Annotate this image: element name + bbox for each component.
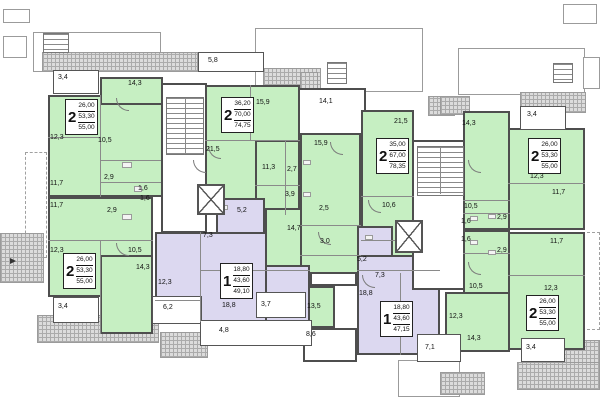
roof-box xyxy=(3,36,27,58)
toilet-icon xyxy=(470,216,478,221)
area-full: 47,15 xyxy=(393,325,409,335)
bath-icon xyxy=(365,235,373,240)
area-total: 53,30 xyxy=(539,308,555,319)
roof-hatch xyxy=(42,52,198,72)
room-area-label: 3,0 xyxy=(320,238,330,246)
room-area-label: 3,4 xyxy=(527,111,537,119)
room-area-label: 12,3 xyxy=(158,279,172,287)
area-total: 53,30 xyxy=(78,112,94,123)
room-area-label: 10,5 xyxy=(128,247,142,255)
toilet-icon xyxy=(303,160,311,165)
stair-stringer xyxy=(440,148,441,194)
room-area-label: 3,4 xyxy=(526,344,536,352)
roof-box xyxy=(583,57,600,89)
apartment-info-box: 1 18,80 43,60 47,15 xyxy=(380,301,413,337)
room-area-label: 10,5 xyxy=(469,283,483,291)
room-area-label: 15,9 xyxy=(314,140,328,148)
wall xyxy=(463,200,510,201)
room-area-label: 11,7 xyxy=(550,238,563,246)
room-area-label: 3,7 xyxy=(261,301,271,309)
room-area-label: 7,1 xyxy=(425,344,435,352)
room-area-label: 14,7 xyxy=(287,225,301,233)
wall xyxy=(200,270,310,271)
apartment-rooms-count: 2 xyxy=(379,149,387,164)
room-area-label: 14,3 xyxy=(136,264,150,272)
area-total: 67,00 xyxy=(389,151,405,162)
entrance-stairs xyxy=(553,63,573,83)
wall xyxy=(100,160,161,161)
wall xyxy=(200,232,201,322)
apartment-info-box: 2 36,20 70,00 74,75 xyxy=(221,97,254,133)
apartment-info-box: 2 26,00 53,30 55,00 xyxy=(526,295,559,331)
area-total: 43,60 xyxy=(233,276,249,287)
wall xyxy=(100,182,161,183)
apartment-info-box: 2 26,00 53,30 55,00 xyxy=(528,138,561,174)
room-area-label: 2,5 xyxy=(319,205,329,213)
apartment-info-box: 2 26,00 53,30 55,00 xyxy=(65,99,98,135)
entrance-canopy-hatch xyxy=(0,233,44,283)
room-area-label: 14,3 xyxy=(462,120,476,128)
room-area-label: 12,3 xyxy=(449,313,463,321)
apartment-rooms-count: 2 xyxy=(66,264,74,279)
apartment-D-rooms xyxy=(300,133,361,274)
room-area-label: 11,7 xyxy=(552,189,565,197)
room-area-label: 21,5 xyxy=(206,146,220,154)
area-total: 53,30 xyxy=(541,151,557,162)
entrance-stairs xyxy=(43,33,69,53)
wall xyxy=(255,185,300,186)
room-area-label: 12,3 xyxy=(50,134,64,142)
area-living: 18,80 xyxy=(233,265,249,276)
room-area-label: 3,4 xyxy=(58,303,68,311)
area-living: 26,00 xyxy=(541,140,557,151)
area-full: 78,35 xyxy=(389,162,405,172)
corridor-middle xyxy=(298,88,366,138)
wall xyxy=(100,240,101,334)
room-area-label: 12,3 xyxy=(544,285,558,293)
toilet-icon xyxy=(470,240,478,245)
room-area-label: 3,9 xyxy=(285,191,295,199)
area-full: 55,00 xyxy=(539,319,555,329)
sink-icon xyxy=(488,214,496,219)
entrance-arrow-icon xyxy=(10,258,16,264)
room-area-label: 18,8 xyxy=(359,290,373,298)
balcony xyxy=(417,334,461,362)
room-area-label: 1,6 xyxy=(140,195,150,203)
sink-icon xyxy=(303,192,311,197)
area-total: 43,60 xyxy=(393,314,409,325)
area-full: 55,00 xyxy=(541,162,557,172)
room-area-label: 2,9 xyxy=(497,214,507,222)
room-area-label: 14,3 xyxy=(467,335,481,343)
apartment-rooms-count: 2 xyxy=(68,110,76,125)
wall xyxy=(508,275,585,276)
apartment-rooms-count: 2 xyxy=(224,108,232,123)
area-living: 35,00 xyxy=(389,140,405,151)
room-area-label: 1,6 xyxy=(461,218,471,226)
room-area-label: 18,8 xyxy=(222,302,236,310)
room-area-label: 11,7 xyxy=(50,180,63,188)
room-area-label: 15,9 xyxy=(256,99,270,107)
entrance-stairs xyxy=(327,62,347,84)
area-total: 70,00 xyxy=(234,110,250,121)
elevator-icon xyxy=(395,220,423,253)
area-full: 74,75 xyxy=(234,121,250,131)
area-living: 26,00 xyxy=(78,101,94,112)
area-total: 53,30 xyxy=(76,266,92,277)
room-area-label: 12,3 xyxy=(50,247,64,255)
roof-hatch xyxy=(440,372,485,395)
wall xyxy=(361,196,414,197)
room-area-label: 1,6 xyxy=(138,185,148,193)
room-area-label: 2,9 xyxy=(497,247,507,255)
room-area-label: 5,2 xyxy=(237,207,247,215)
roof-box xyxy=(563,4,597,24)
floor-plan: 3,4 14,3 12,3 10,5 11,7 2,9 1,6 11,7 1,6… xyxy=(0,0,600,400)
apartment-rooms-count: 1 xyxy=(223,274,231,289)
room-area-label: 5,2 xyxy=(357,256,367,264)
wall xyxy=(300,255,361,256)
elevator-icon xyxy=(197,184,225,215)
stair-stringer xyxy=(185,99,186,153)
sink-icon xyxy=(488,250,496,255)
room-area-label: 2,9 xyxy=(104,174,114,182)
room-area-label: 1,6 xyxy=(461,236,471,244)
apartment-rooms-count: 1 xyxy=(383,312,391,327)
area-living: 26,00 xyxy=(539,297,555,308)
balcony xyxy=(200,320,312,346)
room-area-label: 3,4 xyxy=(58,74,68,82)
room-area-label: 6,2 xyxy=(163,304,173,312)
room-area-label: 11,3 xyxy=(262,164,275,172)
area-full: 55,00 xyxy=(76,277,92,287)
room-area-label: 5,8 xyxy=(208,57,218,65)
room-area-label: 14,1 xyxy=(319,98,333,106)
room-area-label: 21,5 xyxy=(394,118,408,126)
roof-hatch xyxy=(517,362,600,390)
apartment-info-box: 1 18,80 43,60 49,10 xyxy=(220,263,253,299)
area-full: 49,10 xyxy=(233,287,249,297)
area-full: 55,00 xyxy=(78,123,94,133)
room-area-label: 8,6 xyxy=(306,331,316,339)
room-area-label: 7,3 xyxy=(203,232,213,240)
room-area-label: 2,7 xyxy=(287,166,297,174)
room-area-label: 13,5 xyxy=(307,303,321,311)
area-living: 18,80 xyxy=(393,303,409,314)
apartment-rooms-count: 2 xyxy=(531,149,539,164)
sink-icon xyxy=(122,162,132,168)
wall xyxy=(508,183,585,184)
room-area-label: 10,6 xyxy=(382,202,396,210)
wall xyxy=(300,225,361,226)
room-area-label: 4,8 xyxy=(219,327,229,335)
room-area-label: 7,3 xyxy=(375,272,385,280)
room-area-label: 10,5 xyxy=(464,203,478,211)
area-living: 36,20 xyxy=(234,99,250,110)
room-area-label: 12,3 xyxy=(530,173,544,181)
room-area-label: 2,9 xyxy=(107,207,117,215)
apartment-info-box: 2 35,00 67,00 78,35 xyxy=(376,138,409,174)
wall xyxy=(285,140,286,215)
sink-icon xyxy=(122,214,132,220)
area-living: 26,00 xyxy=(76,255,92,266)
wall xyxy=(155,300,200,301)
roof-box xyxy=(3,9,30,23)
room-area-label: 14,3 xyxy=(128,80,142,88)
room-area-label: 10,5 xyxy=(98,137,112,145)
apartment-info-box: 2 26,00 53,30 55,00 xyxy=(63,253,96,289)
wall xyxy=(357,270,440,271)
room-area-label: 11,7 xyxy=(50,202,63,210)
apartment-rooms-count: 2 xyxy=(529,306,537,321)
